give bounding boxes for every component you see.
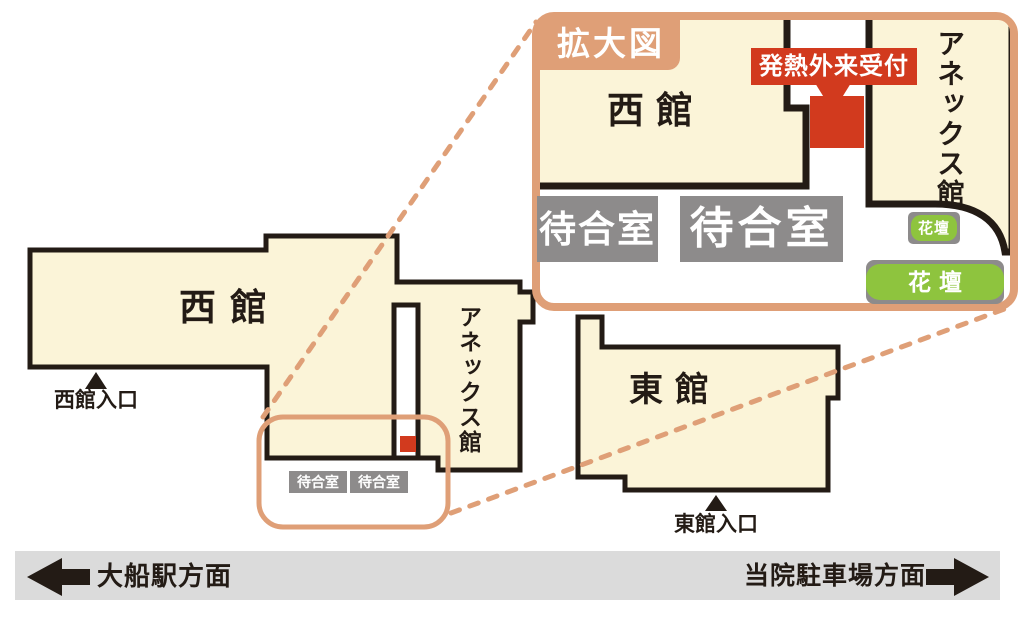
inset-annex-building-label: アネックス館: [928, 30, 970, 208]
flowerbed-small-label: 花壇: [911, 215, 957, 241]
corridor-shape: [394, 305, 418, 458]
east-entrance-label: 東館入口: [666, 512, 766, 536]
waiting-room-label: 待合室: [289, 471, 347, 493]
footer-left-direction-label: 大船駅方面: [97, 562, 237, 590]
inset-waiting-room-label: 待合室: [680, 196, 843, 262]
inset-title: 拡大図: [536, 16, 680, 70]
waiting-room-label: 待合室: [350, 471, 408, 493]
fever-spot-marker: [400, 436, 416, 452]
west-entrance-label: 西館入口: [46, 388, 146, 412]
east-entrance-triangle-icon: [705, 495, 727, 511]
east-building-label: 東館: [605, 370, 745, 410]
footer-right-direction-label: 当院駐車場方面: [744, 562, 926, 590]
inset-waiting-room-label: 待合室: [537, 196, 658, 262]
fever-reception-label: 発熱外来受付: [751, 48, 917, 85]
flowerbed-large: 花壇: [866, 260, 1004, 304]
annex-building-label: アネックス館: [448, 300, 488, 460]
hospital-site-map: 西館 アネックス館 東館 西館入口 東館入口 待合室 待合室 拡大図 西館 発熱…: [0, 0, 1024, 638]
west-entrance-triangle-icon: [85, 372, 107, 389]
site-map-canvas: [0, 0, 1024, 638]
west-building-label: 西館: [160, 286, 300, 328]
flowerbed-large-label: 花壇: [866, 264, 1004, 300]
inset-west-building-label: 西館: [586, 89, 726, 131]
flowerbed-small: 花壇: [908, 212, 960, 244]
